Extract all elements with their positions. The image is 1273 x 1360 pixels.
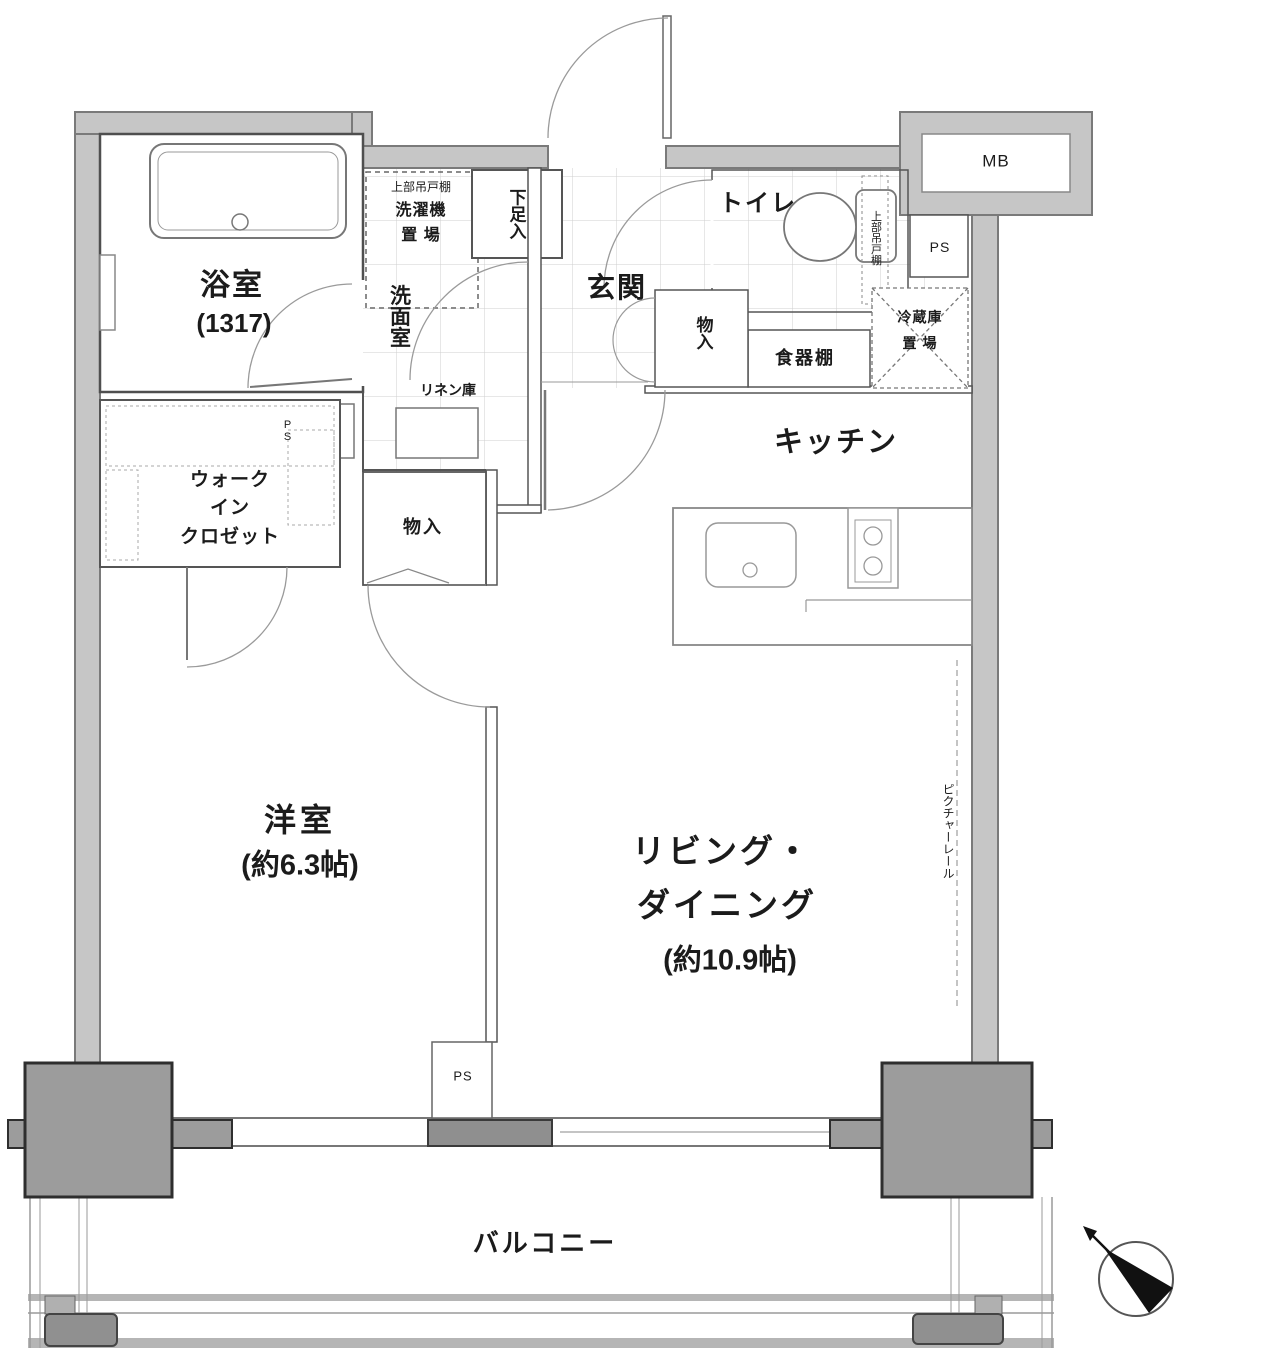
balcony-rail-band-1 (28, 1294, 1054, 1301)
kitchen-label: キッチン (774, 429, 898, 458)
meter-box-label: MB (982, 153, 1010, 170)
wic-label-2: イン (210, 499, 250, 518)
kitchen-counter (673, 508, 972, 645)
room-divider-wall-top (486, 470, 497, 585)
balcony-label: バルコニー (473, 1230, 617, 1256)
western-room-label: 洋室 (264, 804, 336, 836)
pipe-space-top-label: PS (930, 240, 951, 254)
closet-door-arc (187, 567, 287, 667)
center-storage-label: 物入 (403, 518, 443, 536)
bath-label: 浴室 (200, 271, 264, 301)
balcony (28, 1197, 1054, 1348)
living-dining-label-1: リビング・ (632, 835, 812, 868)
washer-shelf-label: 上部吊戸棚 (391, 181, 451, 193)
picture-rail-label: ピクチャーレール (942, 783, 954, 879)
wic-label-1: ウォーク (190, 471, 270, 490)
pillar-left-tab-west (8, 1120, 25, 1148)
room-divider-wall-bottom (486, 707, 497, 1042)
hall-storage-label: 物入 (695, 316, 712, 350)
pipe-space-bottom-label: PS (453, 1070, 472, 1083)
entrance-door-arc (548, 18, 668, 138)
washroom-label: 洗面室 (389, 285, 410, 348)
linen-label: リネン庫 (420, 383, 476, 397)
pillar-right-tab-west (830, 1120, 882, 1148)
top-wall-entry-right (666, 146, 912, 168)
right-wall (972, 215, 998, 1063)
bath-counter (100, 255, 115, 330)
western-room-door-arc (368, 585, 490, 707)
living-dining-label-2: ダイニング (637, 889, 817, 922)
floor-plan: 浴室 (1317) 上部吊戸棚 洗濯機 置 場 下足入 玄関 トイレ 上部吊戸棚… (0, 0, 1273, 1360)
pillar-right (882, 1063, 1032, 1197)
shoe-cabinet-label: 下足入 (508, 189, 525, 240)
living-dining-size-label: (約10.9帖) (663, 947, 797, 976)
hall-door-arc (548, 390, 665, 510)
left-wall (75, 112, 100, 1063)
western-room-size-label: (約6.3帖) (241, 852, 359, 881)
pillar-right-tab-east (1032, 1120, 1052, 1148)
balcony-support-left-small (45, 1296, 75, 1314)
balcony-rail-band-2 (28, 1338, 1054, 1348)
floor-plan-drawing (0, 0, 1273, 1360)
refrigerator-label-2: 置 場 (903, 336, 938, 350)
compass-tail (1090, 1233, 1112, 1255)
top-wall-bath (75, 112, 372, 134)
north-compass (1083, 1226, 1173, 1316)
bath-size-label: (1317) (196, 310, 271, 336)
pillar-left (25, 1063, 172, 1197)
pipe-space-bottom-dark (428, 1120, 552, 1146)
pillar-left-tab-east (172, 1120, 232, 1148)
balcony-planter-left (45, 1314, 117, 1346)
pipe-space-mid-label: PS (282, 419, 293, 443)
top-wall-entry-left (352, 146, 548, 168)
entrance-door-leaf (663, 16, 671, 138)
vanity-unit (396, 408, 478, 458)
toilet-label: トイレ (719, 192, 797, 216)
washer-label-2: 置 場 (401, 228, 440, 244)
wic-label-3: クロゼット (180, 528, 280, 547)
hall-west-wall (528, 168, 541, 512)
balcony-planter-right (913, 1314, 1003, 1344)
refrigerator-label-1: 冷蔵庫 (898, 310, 943, 324)
washer-label-1: 洗濯機 (395, 203, 446, 219)
cupboard-label: 食器棚 (775, 349, 835, 367)
balcony-support-right-small (975, 1296, 1002, 1314)
toilet-shelf-label: 上部吊戸棚 (870, 211, 881, 266)
entrance-label: 玄関 (587, 274, 647, 302)
